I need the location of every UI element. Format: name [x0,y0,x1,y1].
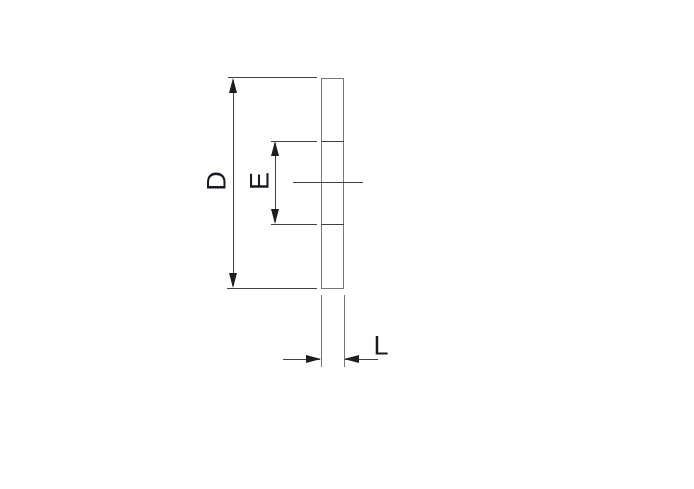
dimension-label-e: E [247,172,274,190]
technical-drawing-canvas: D E L [0,0,694,489]
part-division-line-upper [321,141,344,142]
extension-line-d-bottom [227,288,317,289]
part-division-line-lower [321,224,344,225]
extension-line-e-bottom [271,224,317,225]
extension-line-l-left [321,295,322,367]
arrowhead-left-icon [344,355,359,363]
arrowhead-up-icon [271,141,279,156]
arrowhead-right-icon [306,355,321,363]
dimension-label-d: D [204,171,231,191]
centerline [293,182,363,183]
part-outline-rect [321,78,344,289]
dimension-line-d [233,80,234,286]
arrowhead-up-icon [229,78,237,93]
dimension-label-l: L [373,333,388,360]
arrowhead-down-icon [229,273,237,288]
extension-line-d-top [228,77,317,78]
arrowhead-down-icon [271,209,279,224]
